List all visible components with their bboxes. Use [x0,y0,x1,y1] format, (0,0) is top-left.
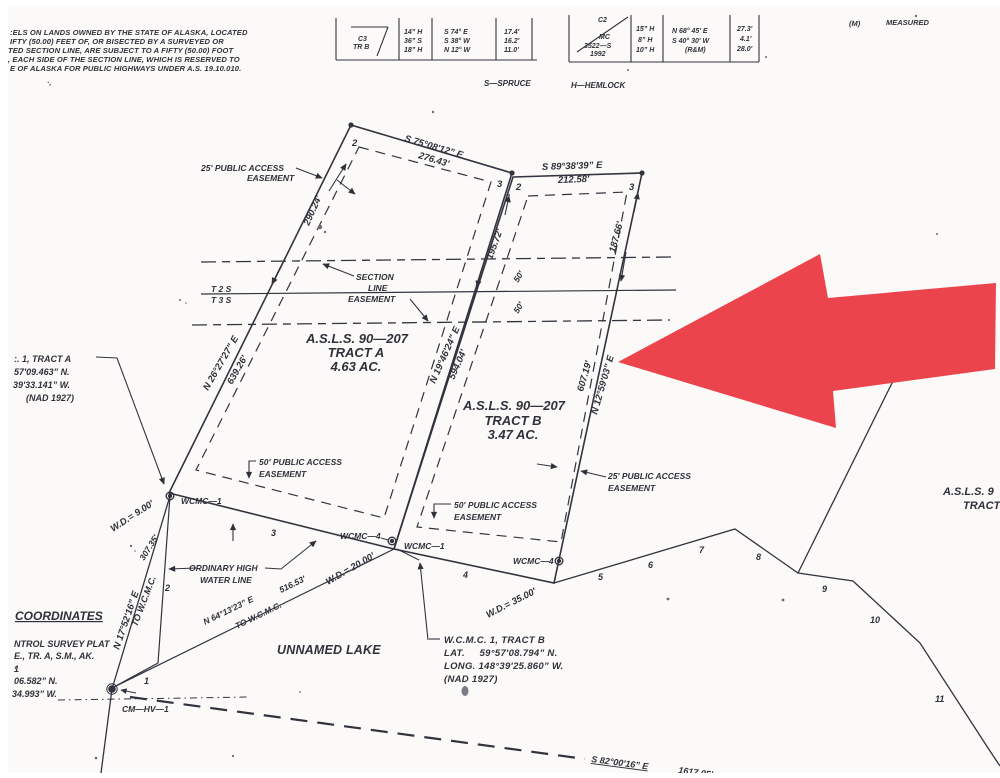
svg-text:3522—S: 3522—S [584,43,612,50]
svg-text:28.0': 28.0' [736,46,753,53]
svg-text:3: 3 [497,179,503,190]
svg-text:UNNAMED LAKE: UNNAMED LAKE [277,643,381,657]
svg-text:TR B: TR B [353,44,369,51]
svg-text:WCMC—4: WCMC—4 [340,531,381,541]
svg-text:(NAD 1927): (NAD 1927) [26,393,74,403]
svg-text:MC: MC [599,34,611,41]
svg-text:SECTION: SECTION [356,272,395,282]
svg-text:27.3': 27.3' [736,26,753,33]
svg-text:2: 2 [164,583,170,593]
svg-text:18” H: 18” H [404,47,423,54]
svg-text:TRACT: TRACT [963,500,1000,512]
svg-text:LONG. 148°39'25.860” W.: LONG. 148°39'25.860” W. [444,661,563,672]
svg-text:50' PUBLIC ACCESS: 50' PUBLIC ACCESS [259,457,342,467]
svg-text:A.S.L.S. 90—207: A.S.L.S. 90—207 [462,398,566,413]
svg-text:MEASURED: MEASURED [886,18,930,27]
svg-text:S—SPRUCE: S—SPRUCE [484,79,531,88]
svg-text:S 38° W: S 38° W [444,37,471,45]
svg-text:TRACT B: TRACT B [484,413,541,428]
svg-text:16.2': 16.2' [504,38,520,45]
svg-text:TRACT A: TRACT A [328,345,385,360]
svg-text:C2: C2 [598,17,607,24]
svg-text:14” H: 14” H [404,29,423,36]
svg-text:36” S: 36” S [404,38,422,45]
svg-text:ORDINARY HIGH: ORDINARY HIGH [189,563,259,573]
svg-text:IFTY (50.00) FEET OF, OR BISEC: IFTY (50.00) FEET OF, OR BISECTED BY A S… [10,37,224,46]
svg-text:LINE: LINE [368,283,388,293]
svg-text:WCMC—1: WCMC—1 [404,541,445,551]
svg-text:T 2 S: T 2 S [211,284,232,294]
svg-text:(M): (M) [849,19,861,28]
svg-text:8” H: 8” H [638,37,653,44]
svg-text:17.4': 17.4' [504,29,520,36]
svg-text:25' PUBLIC ACCESS: 25' PUBLIC ACCESS [607,471,691,481]
svg-text:S 89°38'39” E: S 89°38'39” E [542,160,603,173]
svg-text:E., TR. A, S.M., AK.: E., TR. A, S.M., AK. [14,651,94,661]
svg-text:NTROL SURVEY PLAT: NTROL SURVEY PLAT [14,639,111,649]
svg-text:10” H: 10” H [636,47,655,54]
svg-text:S 40° 30' W: S 40° 30' W [672,37,711,45]
svg-text:3.47 AC.: 3.47 AC. [488,427,539,442]
svg-text:E OF ALASKA FOR PUBLIC HIGHWAY: E OF ALASKA FOR PUBLIC HIGHWAYS UNDER A.… [10,64,241,73]
svg-text:(NAD 1927): (NAD 1927) [444,674,498,685]
svg-text:4.1': 4.1' [739,36,752,43]
svg-text:10: 10 [870,615,880,625]
svg-text:06.582” N.: 06.582” N. [14,676,58,686]
svg-text:3: 3 [271,528,276,538]
svg-text:EASEMENT: EASEMENT [247,173,295,183]
svg-text::. 1, TRACT A: :. 1, TRACT A [14,354,71,364]
svg-text:1: 1 [144,676,149,686]
svg-text:, EACH SIDE OF THE SECTION LIN: , EACH SIDE OF THE SECTION LINE, WHICH I… [7,55,240,64]
svg-text:212.58': 212.58' [557,174,590,186]
svg-text:9: 9 [822,584,827,594]
svg-text:C3: C3 [358,36,367,43]
svg-text:EASEMENT: EASEMENT [259,469,307,479]
svg-text:15” H: 15” H [636,26,655,33]
svg-text:N 12° W: N 12° W [444,46,472,54]
svg-text:N 68° 45' E: N 68° 45' E [672,27,708,35]
svg-text:11.0': 11.0' [504,47,519,54]
svg-text:W.C.M.C. 1, TRACT B: W.C.M.C. 1, TRACT B [444,635,545,646]
svg-text:CM—HV—1: CM—HV—1 [122,704,169,714]
svg-text:T 3 S: T 3 S [211,295,232,305]
svg-text:WCMC—4: WCMC—4 [513,556,554,566]
svg-text:WCMC—1: WCMC—1 [181,496,222,506]
svg-text:4.63 AC.: 4.63 AC. [330,359,382,374]
svg-text:1992: 1992 [590,51,606,58]
svg-text:4: 4 [462,570,468,580]
svg-text:A.S.L.S. 90—207: A.S.L.S. 90—207 [305,331,409,346]
svg-text:TED SECTION LINE, ARE SUBJECT: TED SECTION LINE, ARE SUBJECT TO A FIFTY… [8,46,235,55]
svg-text:·,: ·, [47,80,51,87]
svg-text:3: 3 [629,182,635,193]
svg-text:34.993” W.: 34.993” W. [12,689,57,699]
svg-text:57'09.463” N.: 57'09.463” N. [14,367,70,377]
svg-text:EASEMENT: EASEMENT [608,483,656,493]
svg-text:EASEMENT: EASEMENT [454,512,502,522]
svg-text:39'33.141” W.: 39'33.141” W. [13,380,70,390]
svg-text:2: 2 [515,182,522,193]
svg-text:8: 8 [756,552,761,562]
svg-text:A.S.L.S. 9: A.S.L.S. 9 [942,486,995,498]
svg-text:H—HEMLOCK: H—HEMLOCK [571,81,626,90]
svg-text:LAT. 59°57'08.794” N.: LAT. 59°57'08.794” N. [444,648,558,659]
svg-text::ELS ON LANDS OWNED BY THE STA: :ELS ON LANDS OWNED BY THE STATE OF ALAS… [10,28,248,37]
svg-text:S 74° E: S 74° E [444,28,468,36]
svg-text:WATER LINE: WATER LINE [200,575,252,585]
svg-text:EASEMENT: EASEMENT [348,294,396,304]
svg-text:2: 2 [351,138,358,149]
svg-text:COORDINATES: COORDINATES [15,609,103,623]
svg-text:(R&M): (R&M) [685,47,706,54]
svg-text:11: 11 [935,694,944,704]
svg-text:50' PUBLIC ACCESS: 50' PUBLIC ACCESS [454,500,537,510]
svg-text:25' PUBLIC ACCESS: 25' PUBLIC ACCESS [200,163,284,173]
